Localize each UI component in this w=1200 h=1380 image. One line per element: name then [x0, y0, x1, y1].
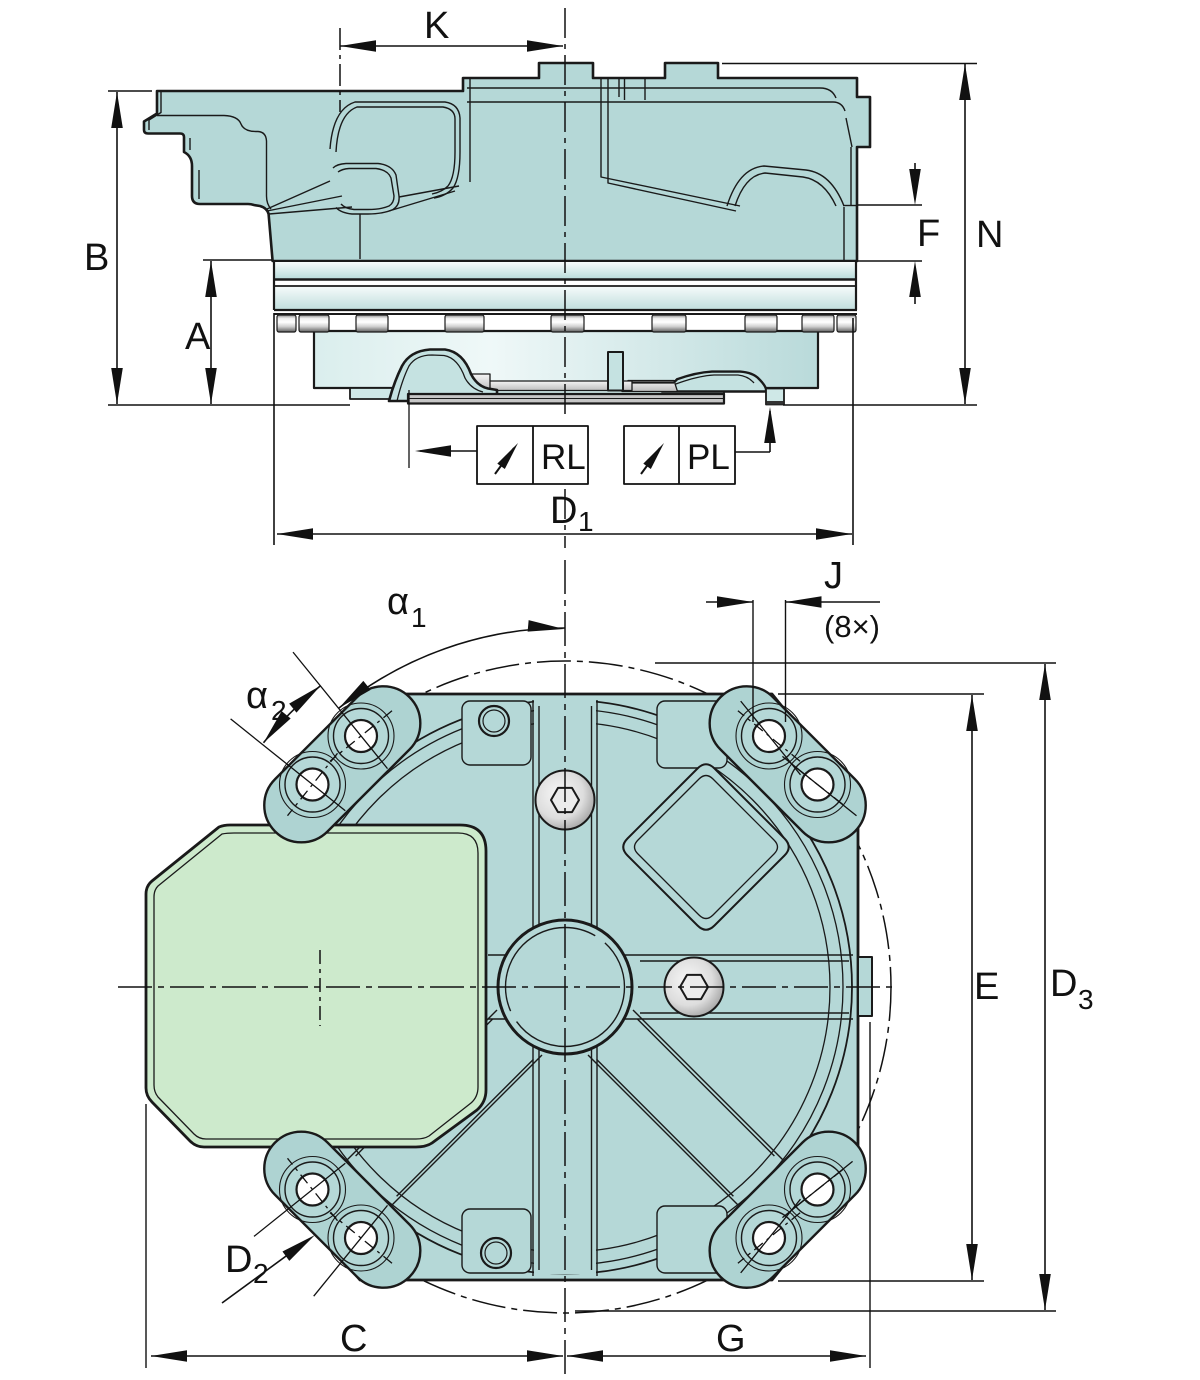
- svg-text:1: 1: [411, 602, 427, 633]
- svg-text:2: 2: [253, 1258, 269, 1289]
- svg-text:F: F: [917, 213, 940, 255]
- svg-text:A: A: [185, 316, 211, 358]
- svg-text:3: 3: [1078, 984, 1094, 1015]
- svg-text:N: N: [976, 214, 1003, 256]
- svg-text:(8×): (8×): [824, 609, 880, 644]
- svg-text:PL: PL: [687, 438, 730, 477]
- svg-text:B: B: [84, 237, 109, 279]
- svg-text:D: D: [550, 490, 577, 532]
- svg-text:J: J: [824, 555, 843, 597]
- svg-text:E: E: [974, 966, 999, 1008]
- svg-text:G: G: [716, 1318, 746, 1360]
- svg-text:1: 1: [578, 506, 594, 537]
- svg-text:α: α: [387, 581, 409, 623]
- svg-text:2: 2: [271, 695, 287, 726]
- svg-text:D: D: [225, 1239, 252, 1281]
- svg-text:α: α: [246, 675, 268, 717]
- svg-text:RL: RL: [541, 438, 586, 477]
- svg-text:D: D: [1050, 963, 1077, 1005]
- svg-text:C: C: [340, 1318, 367, 1360]
- svg-text:K: K: [424, 5, 449, 47]
